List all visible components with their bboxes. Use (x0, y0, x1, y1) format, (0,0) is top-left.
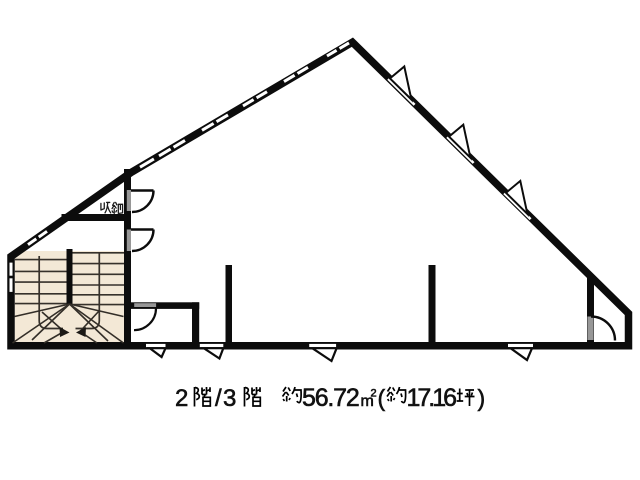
svg-text:): ) (478, 385, 486, 411)
svg-text:2: 2 (371, 388, 377, 400)
svg-text:3: 3 (223, 385, 236, 412)
svg-text:17.16: 17.16 (407, 384, 457, 412)
svg-text:2: 2 (175, 385, 188, 412)
svg-text:(: ( (378, 385, 386, 411)
svg-text:56.72: 56.72 (302, 384, 359, 412)
svg-text:/: / (215, 385, 222, 412)
